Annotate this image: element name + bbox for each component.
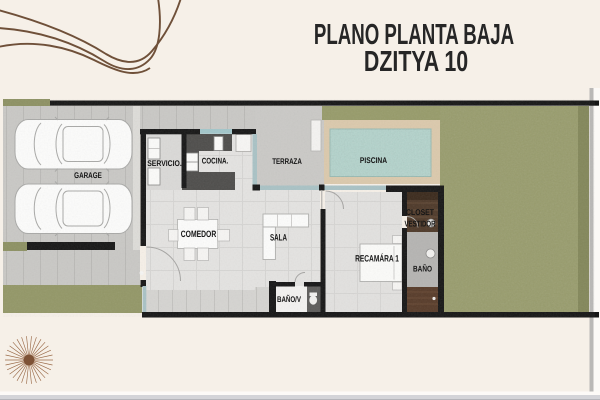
svg-text:BAÑO/V: BAÑO/V xyxy=(277,294,301,304)
svg-text:COCINA.: COCINA. xyxy=(202,157,229,166)
svg-text:BAÑO: BAÑO xyxy=(413,264,432,274)
svg-text:GARAGE: GARAGE xyxy=(74,171,102,180)
svg-text:RECAMÁRA 1: RECAMÁRA 1 xyxy=(355,253,399,264)
svg-text:DZITYA 10: DZITYA 10 xyxy=(364,46,468,78)
svg-text:SALA: SALA xyxy=(270,232,287,242)
svg-text:COMEDOR: COMEDOR xyxy=(181,229,217,239)
svg-text:SERVICIO.: SERVICIO. xyxy=(147,159,182,168)
svg-text:CLOSET: CLOSET xyxy=(406,207,435,217)
svg-text:VESTIDOR: VESTIDOR xyxy=(405,219,436,229)
svg-text:TERRAZA: TERRAZA xyxy=(272,157,302,166)
svg-text:PISCINA: PISCINA xyxy=(360,156,387,165)
